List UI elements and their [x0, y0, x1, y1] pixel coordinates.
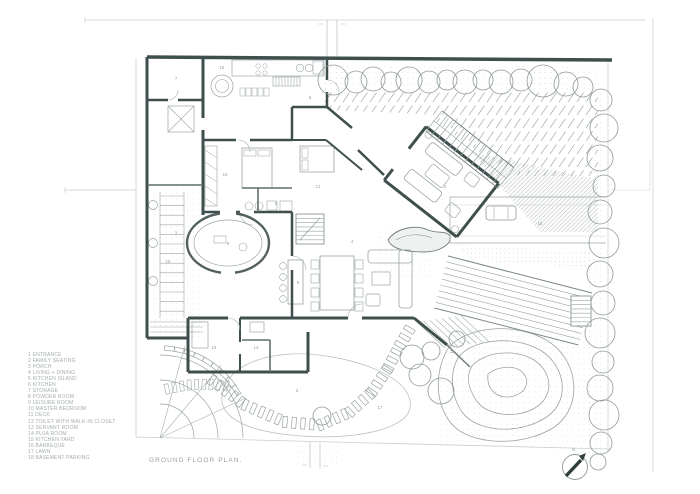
barbeque-pit-inner: [216, 80, 229, 93]
door-swing: [228, 318, 240, 330]
curved-step: [194, 379, 198, 389]
plan-title: GROUND FLOOR PLAN.: [149, 457, 242, 464]
stove-burner: [256, 64, 260, 68]
kitchen-counter: [232, 60, 324, 76]
room-number-label: 2: [444, 184, 447, 189]
room-number-label: 7: [175, 76, 178, 81]
paver-stone: [241, 399, 249, 411]
shower: [280, 201, 292, 211]
room-number-label: 9: [227, 241, 230, 246]
paver-stone: [371, 380, 383, 390]
fan-radial: [160, 398, 246, 438]
wall-segment: [358, 150, 384, 175]
curved-step: [164, 384, 170, 395]
wall-segment: [147, 57, 612, 60]
armchair: [366, 294, 380, 306]
counter-module: [240, 88, 245, 96]
fan-radial: [160, 346, 185, 438]
bed: [300, 146, 334, 172]
stool: [280, 274, 287, 281]
stipple-region: [436, 328, 594, 442]
drawing-sheet: 123456789101112131415161718 N 1 ENTRANCE…: [0, 0, 700, 494]
room-number-label: 6: [309, 95, 312, 100]
paver-stone: [228, 391, 238, 402]
pillow: [302, 148, 308, 158]
basin: [245, 202, 253, 210]
paver-stone: [249, 403, 257, 415]
paver-stone: [274, 413, 282, 425]
paver-stone: [257, 406, 265, 418]
armchair: [463, 171, 480, 188]
car-symbol: [486, 206, 516, 220]
legend-item: 18 BASEMENT PARKING: [28, 455, 148, 461]
curved-step: [179, 381, 184, 391]
counter-module: [264, 88, 269, 96]
wardrobe-tick: [205, 162, 217, 170]
stair-arrow: [300, 218, 320, 240]
tree-symbol: [400, 345, 424, 369]
ramp-line: [447, 262, 591, 299]
paver-stone: [291, 417, 296, 428]
sink-bowl: [305, 64, 313, 72]
dining-chair: [311, 274, 319, 283]
stipple-region: [150, 318, 205, 338]
stool: [280, 285, 287, 292]
wardrobe-tick: [205, 174, 217, 182]
counter-module: [246, 88, 251, 96]
paver-stone: [386, 356, 398, 365]
dining-chair: [311, 288, 319, 297]
dining-chair: [355, 274, 363, 283]
wardrobe-tick: [205, 186, 217, 194]
wall-segment: [384, 169, 393, 180]
fan-step-arc: [160, 404, 194, 438]
fan-radial: [160, 365, 221, 438]
stipple-region: [455, 244, 590, 268]
north-label: N: [572, 447, 575, 452]
stool: [280, 263, 287, 270]
shrine: [250, 322, 264, 332]
wall-segment: [457, 183, 499, 237]
dining-chair: [355, 288, 363, 297]
grille: [273, 77, 300, 86]
pillow: [302, 160, 308, 170]
room-number-label: 5: [297, 280, 300, 285]
room-number-label: 15: [166, 259, 171, 264]
legend: 1 ENTRANCE2 FAMILY SEATING3 PORCH4 LIVIN…: [28, 352, 148, 461]
armchair: [444, 202, 461, 219]
seat: [214, 236, 226, 243]
paver-stone: [399, 333, 411, 342]
basin: [255, 202, 263, 210]
room-number-label: 11: [450, 349, 455, 354]
paver-stone: [365, 388, 376, 399]
stove-burner: [263, 71, 267, 75]
wall-segment: [326, 140, 362, 170]
sink-bowl: [296, 64, 304, 72]
counter-module: [252, 88, 257, 96]
lawn-blob: [222, 354, 410, 437]
room-number-label: 3: [296, 388, 299, 393]
stipple-region: [296, 444, 340, 466]
side-table: [239, 243, 247, 251]
bench-seat: [164, 346, 174, 351]
room-number-label: 4: [351, 239, 354, 244]
paver-stone: [282, 416, 287, 427]
stove-burner: [256, 71, 260, 75]
paver-stone: [266, 410, 274, 422]
counter-module: [258, 88, 263, 96]
tree-symbol: [409, 364, 431, 386]
oval-opening: [220, 209, 236, 218]
wardrobe: [205, 146, 217, 206]
paver-stone: [300, 418, 305, 429]
paver-stone: [358, 394, 369, 405]
ramp-line: [442, 279, 586, 316]
stool: [280, 296, 287, 303]
room-number-label: 18: [538, 221, 543, 226]
bench-seat: [232, 385, 241, 396]
door-swing: [168, 90, 178, 100]
paver-stone: [332, 412, 340, 424]
tree-symbol: [318, 65, 348, 95]
kitchen-island: [288, 260, 303, 304]
wardrobe-tick: [205, 150, 217, 158]
room-number-label: 17: [378, 405, 383, 410]
bed: [242, 148, 272, 188]
sofa: [424, 142, 464, 177]
paver-stone: [366, 387, 378, 397]
dining-chair: [355, 302, 363, 311]
room-number-label: 10: [223, 172, 228, 177]
ramp-line: [445, 268, 589, 305]
north-arrow: N: [563, 447, 588, 480]
stove-burner: [263, 64, 267, 68]
ramp-line: [444, 273, 588, 310]
wall-segment: [409, 127, 426, 149]
bench-seat: [193, 353, 204, 361]
coffee-table: [424, 164, 450, 189]
paver-stone: [376, 372, 388, 382]
room-number-label: 14: [254, 345, 259, 350]
oval-opening: [221, 268, 235, 277]
dining-chair: [311, 260, 319, 269]
barbeque-pit: [211, 75, 233, 97]
room-number-label: 16: [220, 65, 225, 70]
room-number-label: 8: [275, 201, 278, 206]
paver-stone: [351, 400, 362, 411]
pillow: [258, 150, 270, 156]
paver-stone: [403, 325, 415, 334]
room-number-label: 12: [316, 184, 321, 189]
dining-chair: [311, 302, 319, 311]
paver-stone: [341, 408, 349, 420]
north-arrow-needle: [566, 460, 581, 476]
door-swing: [292, 256, 306, 270]
dining-table: [320, 256, 354, 310]
dining-chair: [355, 260, 363, 269]
wardrobe-tick: [205, 198, 217, 206]
room-number-label: 13: [212, 345, 217, 350]
